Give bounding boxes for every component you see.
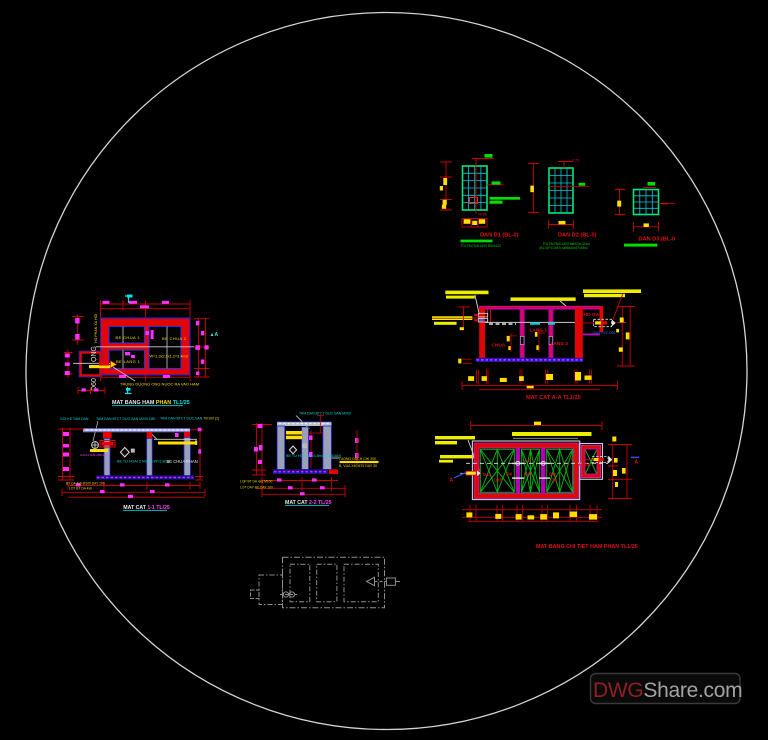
svg-text:DAN D1 (BL-0): DAN D1 (BL-0) xyxy=(480,233,519,239)
svg-text:BE CHUA 1: BE CHUA 1 xyxy=(116,335,141,340)
svg-text:D6: D6 xyxy=(552,478,558,483)
svg-text:TRUNG DUONG ONG NUOC RA VAO HA: TRUNG DUONG ONG NUOC RA VAO HAM xyxy=(120,382,199,387)
svg-text:D4a: D4a xyxy=(483,472,491,477)
svg-text:MAT BANG CHI TIET HAM PHAN TL1: MAT BANG CHI TIET HAM PHAN TL1/25 xyxy=(536,544,638,550)
svg-text:BE CHUA PHAN: BE CHUA PHAN xyxy=(167,459,198,464)
svg-text:(BL-0)P1/2x8 b.xaff8xa3x4Tx43x: (BL-0)P1/2x8 b.xaff8xa3x4Tx43xd xyxy=(540,246,588,250)
svg-text:A: A xyxy=(450,478,454,484)
svg-text:HO GA: HO GA xyxy=(577,462,591,467)
svg-text:GACH THE 200x100: GACH THE 200x100 xyxy=(80,453,108,457)
svg-text:BT DA 4x6 M100 DAY 100: BT DA 4x6 M100 DAY 100 xyxy=(66,482,105,486)
svg-text:DAN D2 (BL-0): DAN D2 (BL-0) xyxy=(558,233,597,239)
svg-text:▲A: ▲A xyxy=(210,332,219,338)
svg-text:ONG PVC D90: ONG PVC D90 xyxy=(593,331,616,335)
svg-text:LOT DAY BE DAY 100: LOT DAY BE DAY 100 xyxy=(240,486,273,490)
svg-text:MAT CAT A-A TL1/25: MAT CAT A-A TL1/25 xyxy=(526,395,581,401)
svg-text:HO GA: HO GA xyxy=(584,312,600,318)
svg-text:BE CHUA 2: BE CHUA 2 xyxy=(162,336,187,341)
svg-text:L.D: L.D xyxy=(525,458,532,463)
svg-text:HO PHAN XA HOI: HO PHAN XA HOI xyxy=(94,314,98,343)
svg-text:LOP BT DA 4x6 M100: LOP BT DA 4x6 M100 xyxy=(240,480,272,484)
svg-text:A: A xyxy=(635,460,639,466)
svg-text:D4: D4 xyxy=(507,472,513,477)
svg-text:D3: D3 xyxy=(571,457,577,462)
svg-text:T.25: T.25 xyxy=(573,159,580,163)
svg-text:DAN D3 (BL-0: DAN D3 (BL-0 xyxy=(639,237,676,243)
svg-text:TAM DAN BTCT DUC SAN M200 D80: TAM DAN BTCT DUC SAN M200 D80 xyxy=(96,417,155,421)
svg-text:DK5: DK5 xyxy=(494,478,503,483)
svg-text:TAM DAN BTCT DUC SAN M200: TAM DAN BTCT DUC SAN M200 xyxy=(299,412,351,416)
svg-text:LOT BT DA 4x6: LOT BT DA 4x6 xyxy=(69,487,92,491)
svg-text:P1L75x75x6-L500 M10x120: P1L75x75x6-L500 M10x120 xyxy=(461,244,501,248)
svg-text:CHUA: CHUA xyxy=(492,343,506,349)
svg-text:B, VUA XM M75 DAY 30: B, VUA XM M75 DAY 30 xyxy=(339,464,377,468)
svg-text:D4c: D4c xyxy=(549,472,557,477)
svg-text:+0.05: +0.05 xyxy=(478,213,487,217)
svg-text:BE TU HOAI 3 NGAN W=3.8m3: BE TU HOAI 3 NGAN W=3.8m3 xyxy=(117,459,170,463)
svg-text:BE TU HOAI W=3.8m3 (3 NGAN): BE TU HOAI W=3.8m3 (3 NGAN) xyxy=(286,454,341,458)
svg-text:A60: A60 xyxy=(662,202,668,206)
svg-text:W=1.3x2.2x1.2=3.4m3: W=1.3x2.2x1.2=3.4m3 xyxy=(150,354,188,358)
svg-text:GOI KE TAM DAN: GOI KE TAM DAN xyxy=(60,417,89,421)
svg-text:BE LANG 1: BE LANG 1 xyxy=(116,359,141,364)
svg-text:DWGShare.com: DWGShare.com xyxy=(593,679,742,702)
svg-text:ỌNG: ỌNG xyxy=(91,346,98,362)
svg-text:D4b: D4b xyxy=(524,472,532,477)
svg-text:TAM DAN BTCT DUC SAN 70/100 (2: TAM DAN BTCT DUC SAN 70/100 (2) xyxy=(160,416,219,420)
svg-text:TUONG GACH CHI 200: TUONG GACH CHI 200 xyxy=(339,457,377,461)
svg-text:LANG 2: LANG 2 xyxy=(551,341,569,347)
